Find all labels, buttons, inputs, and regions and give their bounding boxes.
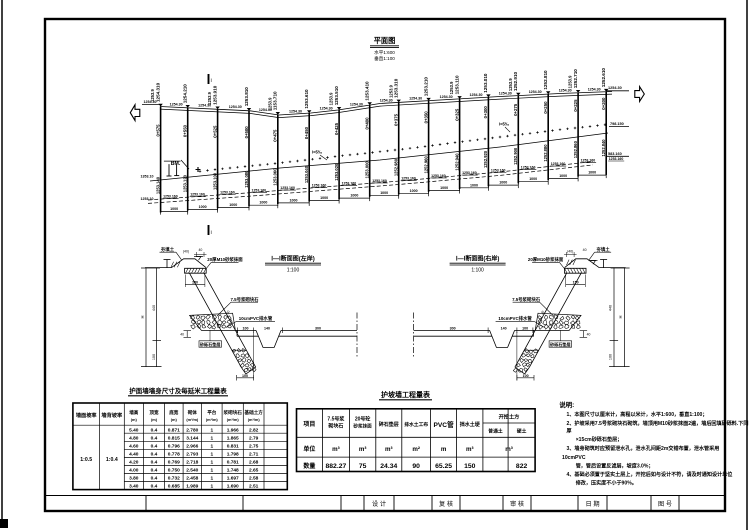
svg-text:浆砌块石: 浆砌块石 (224, 409, 243, 416)
svg-text:1254.30: 1254.30 (529, 90, 542, 94)
svg-text:1253.160: 1253.160 (431, 174, 446, 178)
svg-text:798.150: 798.150 (610, 122, 624, 126)
svg-text:1253.140: 1253.140 (155, 176, 160, 194)
svg-text:1:100: 1:100 (287, 268, 300, 274)
svg-text:5.40: 5.40 (129, 427, 139, 433)
svg-text:4.40: 4.40 (129, 451, 139, 457)
svg-text:2.718: 2.718 (186, 460, 198, 466)
svg-text:1000: 1000 (559, 174, 567, 178)
svg-text:2.71: 2.71 (249, 451, 259, 457)
svg-text:150: 150 (464, 463, 476, 470)
svg-text:开挖土方: 开挖土方 (499, 413, 520, 421)
svg-text:砌体: 砌体 (187, 409, 198, 416)
svg-text:1252.840: 1252.840 (601, 139, 606, 157)
svg-text:1254.210: 1254.210 (183, 84, 188, 104)
svg-text:1253.160: 1253.160 (462, 171, 477, 175)
svg-text:0.778: 0.778 (168, 451, 180, 457)
svg-text:0+475: 0+475 (273, 129, 278, 142)
svg-text:m³: m³ (466, 446, 474, 453)
svg-text:1:100: 1:100 (471, 268, 484, 274)
svg-text:40: 40 (180, 332, 184, 336)
svg-text:90: 90 (412, 463, 420, 470)
svg-text:碎石垫层: 碎石垫层 (379, 421, 399, 428)
svg-text:3、墙身砌筑时应预留泄水孔，泄水孔间距2m交错布置，泄水管采: 3、墙身砌筑时应预留泄水孔，泄水孔间距2m交错布置，泄水管采用 (567, 445, 720, 452)
svg-text:150: 150 (573, 280, 579, 284)
svg-text:0.4: 0.4 (151, 468, 158, 474)
svg-text:排水土工布: 排水土工布 (404, 421, 428, 428)
svg-text:1253.160: 1253.160 (551, 162, 566, 166)
svg-text:1253.120: 1253.120 (183, 174, 188, 192)
svg-text:150: 150 (192, 280, 198, 284)
svg-text:0+425: 0+425 (334, 122, 339, 135)
svg-text:砂浆抹面: 砂浆抹面 (352, 423, 372, 430)
svg-text:0.732: 0.732 (168, 476, 180, 482)
svg-text:0+325: 0+325 (454, 108, 459, 121)
svg-text:4、基础必须置于坚实土层上，开挖后如与设计不符，请及时通知设: 4、基础必须置于坚实土层上，开挖后如与设计不符，请及时通知设计单位 (567, 471, 733, 478)
svg-text:1000: 1000 (320, 196, 328, 200)
svg-text:7.5号浆砌块石: 7.5号浆砌块石 (230, 296, 259, 303)
svg-text:2.458: 2.458 (186, 476, 198, 482)
svg-text:1: 1 (210, 451, 213, 457)
svg-text:1253.510: 1253.510 (334, 86, 339, 106)
svg-text:1353.10: 1353.10 (141, 175, 154, 179)
svg-text:100: 100 (243, 326, 249, 330)
svg-text:(m³/m): (m³/m) (186, 417, 199, 422)
svg-text:100: 100 (522, 326, 528, 330)
svg-text:BM.: BM. (171, 161, 181, 167)
svg-text:1253.160: 1253.160 (521, 165, 536, 169)
svg-text:583.160: 583.160 (608, 152, 622, 156)
svg-text:1253.010: 1253.010 (483, 73, 488, 93)
svg-text:2.82: 2.82 (249, 427, 259, 433)
svg-text:1253.160: 1253.160 (581, 159, 596, 163)
svg-text:1252.810: 1252.810 (543, 70, 548, 90)
svg-text:0.781: 0.781 (227, 460, 239, 466)
svg-text:1153.710: 1153.710 (273, 91, 278, 110)
svg-text:0.4: 0.4 (151, 451, 158, 457)
svg-text:1: 1 (210, 484, 213, 490)
svg-text:2.75: 2.75 (249, 443, 259, 449)
svg-text:1253.160: 1253.160 (342, 181, 357, 185)
svg-text:2.65: 2.65 (249, 468, 259, 474)
svg-text:0.4: 0.4 (151, 460, 158, 466)
svg-text:0.685: 0.685 (168, 484, 180, 490)
svg-text:设 计: 设 计 (372, 500, 386, 508)
svg-text:1000: 1000 (410, 189, 418, 193)
svg-text:平台: 平台 (207, 409, 217, 416)
svg-text:1253.210: 1253.210 (423, 77, 428, 97)
svg-text:(m³/m): (m³/m) (227, 417, 240, 422)
svg-text:4.20: 4.20 (129, 460, 139, 466)
svg-text:0+450: 0+450 (304, 126, 309, 139)
svg-text:1254.30: 1254.30 (409, 97, 422, 101)
svg-text:40: 40 (198, 248, 202, 252)
svg-text:1252.710: 1252.710 (573, 69, 578, 89)
svg-text:m³: m³ (385, 446, 393, 453)
svg-text:1253.9: 1253.9 (568, 75, 573, 88)
svg-text:(m): (m) (151, 417, 158, 422)
svg-text:882.27: 882.27 (326, 463, 347, 470)
svg-text:1253.020: 1253.020 (334, 163, 339, 181)
svg-text:2.68: 2.68 (249, 460, 259, 466)
svg-text:1253.310: 1253.310 (394, 78, 399, 98)
svg-text:100: 100 (523, 374, 529, 378)
svg-text:1254.30: 1254.30 (289, 109, 302, 113)
svg-text:1254.30: 1254.30 (588, 88, 601, 92)
svg-text:1:0.5: 1:0.5 (80, 457, 92, 463)
svg-text:1253.810: 1253.810 (244, 87, 249, 107)
svg-text:0.871: 0.871 (168, 427, 180, 433)
svg-text:1253.410: 1253.410 (365, 81, 370, 101)
svg-text:1000: 1000 (170, 207, 178, 211)
svg-text:0+300: 0+300 (483, 106, 488, 119)
svg-text:基础土方: 基础土方 (244, 409, 264, 416)
svg-text:底宽: 底宽 (169, 409, 179, 416)
svg-text:0+225: 0+225 (573, 99, 578, 112)
svg-text:7.5号浆: 7.5号浆 (327, 416, 345, 423)
svg-text:H: H (618, 315, 623, 318)
svg-text:1: 1 (210, 476, 213, 482)
svg-text:10cmPVC排水管: 10cmPVC排水管 (239, 315, 273, 322)
svg-text:PVC管: PVC管 (434, 420, 455, 429)
svg-text:4.00: 4.00 (129, 468, 139, 474)
svg-text:1.748: 1.748 (227, 468, 239, 474)
svg-text:1254.30: 1254.30 (440, 95, 453, 99)
svg-text:0.4: 0.4 (151, 427, 158, 433)
svg-text:822: 822 (516, 463, 528, 470)
svg-text:单位: 单位 (303, 445, 315, 453)
svg-text:0+500: 0+500 (244, 126, 249, 139)
svg-text:i=5‰: i=5‰ (499, 122, 510, 127)
svg-text:0.4: 0.4 (151, 484, 158, 490)
svg-text:1253.160: 1253.160 (220, 191, 235, 195)
svg-text:1253.910: 1253.910 (212, 85, 217, 105)
svg-text:140: 140 (501, 326, 507, 330)
svg-text:40: 40 (583, 248, 587, 252)
svg-text:顶宽: 顶宽 (149, 409, 159, 416)
svg-text:1253.160: 1253.160 (491, 169, 506, 173)
svg-text:7.5号浆砌块石: 7.5号浆砌块石 (512, 296, 541, 303)
svg-text:平面图: 平面图 (374, 36, 396, 45)
svg-text:1253.160: 1253.160 (252, 188, 267, 192)
svg-text:1254.30: 1254.30 (170, 102, 183, 106)
svg-text:1253.9: 1253.9 (508, 78, 513, 91)
svg-text:24.34: 24.34 (380, 463, 397, 470)
svg-text:1253.160: 1253.160 (312, 184, 327, 188)
svg-text:1253.080: 1253.080 (244, 170, 249, 188)
svg-text:1000: 1000 (380, 191, 388, 195)
svg-text:0.4: 0.4 (151, 443, 158, 449)
svg-text:(m): (m) (171, 417, 178, 422)
svg-text:0+250: 0+250 (543, 101, 548, 114)
svg-text:1254.30: 1254.30 (320, 107, 333, 111)
svg-text:1.865: 1.865 (227, 435, 239, 441)
svg-text:墙高: 墙高 (129, 409, 139, 416)
svg-text:管，管后设置反滤层，坡度3.0%；: 管，管后设置反滤层，坡度3.0%； (576, 463, 654, 470)
svg-text:3.40: 3.40 (129, 484, 139, 490)
svg-text:1000: 1000 (588, 171, 596, 175)
svg-text:1、本图尺寸以厘米计，高程以米计，水平1:600，垂直1:1: 1、本图尺寸以厘米计，高程以米计，水平1:600，垂直1:100； (567, 411, 708, 418)
svg-text:0.4: 0.4 (151, 476, 158, 482)
svg-text:65.25: 65.25 (435, 463, 452, 470)
svg-text:0.831: 0.831 (227, 443, 239, 449)
svg-text:审 核: 审 核 (510, 500, 524, 508)
svg-text:夯填土: 夯填土 (160, 246, 175, 253)
svg-text:1000: 1000 (229, 203, 237, 207)
svg-text:1253.060: 1253.060 (273, 168, 278, 186)
svg-text:2.780: 2.780 (186, 427, 198, 433)
svg-text:1252.900: 1252.900 (513, 147, 518, 165)
svg-text:1:0.4: 1:0.4 (106, 457, 118, 463)
svg-text:30: 30 (540, 310, 545, 315)
svg-text:0+375: 0+375 (394, 113, 399, 126)
svg-text:4.80: 4.80 (129, 435, 139, 441)
svg-text:1254.30: 1254.30 (198, 104, 211, 108)
svg-text:300: 300 (315, 326, 321, 330)
svg-text:m: m (441, 446, 447, 453)
svg-text:水平1:600: 水平1:600 (374, 49, 395, 56)
svg-text:300: 300 (450, 326, 456, 330)
svg-text:Ⅰ—Ⅰ断面图(右岸): Ⅰ—Ⅰ断面图(右岸) (456, 255, 500, 263)
svg-text:砂砾石垫层: 砂砾石垫层 (549, 341, 570, 347)
svg-text:1252.920: 1252.920 (483, 150, 488, 168)
svg-text:墙背坡率: 墙背坡率 (101, 411, 123, 419)
svg-text:Ⅰ: Ⅰ (211, 230, 212, 235)
svg-text:复 核: 复 核 (439, 500, 453, 508)
svg-text:4.60: 4.60 (129, 443, 139, 449)
svg-text:0.750: 0.750 (168, 468, 180, 474)
svg-text:0+575: 0+575 (155, 124, 160, 137)
svg-text:1252.960: 1252.960 (423, 156, 428, 174)
svg-text:数量: 数量 (303, 462, 315, 470)
svg-text:1: 1 (210, 427, 213, 433)
svg-text:1253.160: 1253.160 (190, 193, 205, 197)
svg-text:1000: 1000 (499, 181, 507, 185)
svg-text:3.144: 3.144 (186, 435, 198, 441)
svg-text:10cmPVC排水管: 10cmPVC排水管 (498, 315, 532, 322)
svg-text:1254.30: 1254.30 (144, 100, 157, 104)
svg-text:30: 30 (225, 310, 230, 315)
svg-text:1253.160: 1253.160 (163, 195, 178, 199)
svg-text:0+525: 0+525 (212, 125, 217, 138)
svg-text:0+350: 0+350 (423, 111, 428, 124)
svg-text:1252.940: 1252.940 (454, 153, 459, 171)
svg-text:夯填土: 夯填土 (596, 246, 611, 253)
svg-text:75: 75 (359, 463, 367, 470)
svg-text:H: H (140, 315, 145, 318)
svg-text:1: 1 (210, 468, 213, 474)
svg-text:1253.100: 1253.100 (212, 172, 217, 190)
svg-text:修改，压实度不小于90%。: 修改，压实度不小于90%。 (575, 480, 637, 487)
svg-text:10cmPVC: 10cmPVC (562, 455, 586, 461)
svg-text:挡水土埂: 挡水土埂 (459, 421, 481, 428)
svg-text:说明:: 说明: (559, 400, 574, 409)
svg-text:项目: 项目 (303, 420, 315, 428)
svg-text:440: 440 (609, 305, 613, 311)
svg-text:2.51: 2.51 (249, 484, 259, 490)
svg-text:m²: m² (412, 446, 420, 453)
svg-text:2.58: 2.58 (249, 476, 259, 482)
svg-text:100: 100 (609, 354, 613, 360)
svg-text:砌块石: 砌块石 (327, 423, 343, 430)
svg-text:日 期: 日 期 (585, 500, 599, 508)
svg-text:1252.610: 1252.610 (601, 68, 606, 88)
svg-text:普通土: 普通土 (488, 428, 503, 435)
svg-text:(m³/m): (m³/m) (206, 417, 219, 422)
svg-text:(40): (40) (183, 250, 189, 254)
svg-text:2.793: 2.793 (186, 451, 198, 457)
svg-text:1000: 1000 (259, 201, 267, 205)
svg-text:1253.610: 1253.610 (304, 89, 309, 109)
svg-text:护坡墙工程量表: 护坡墙工程量表 (381, 390, 431, 399)
svg-text:墙面坡率: 墙面坡率 (76, 411, 98, 419)
svg-text:1000: 1000 (440, 186, 448, 190)
svg-text:1253.9: 1253.9 (388, 84, 393, 97)
svg-text:1254.30: 1254.30 (608, 86, 622, 90)
svg-text:1: 1 (210, 460, 213, 466)
svg-text:1253.160: 1253.160 (401, 177, 416, 181)
svg-text:1252.860: 1252.860 (573, 140, 578, 158)
svg-text:0.4: 0.4 (151, 435, 158, 441)
svg-text:1253.9: 1253.9 (449, 81, 454, 94)
svg-text:40: 40 (587, 332, 591, 336)
svg-text:硬土: 硬土 (517, 428, 527, 435)
svg-text:0.815: 0.815 (168, 435, 180, 441)
svg-text:(m³/m): (m³/m) (248, 417, 261, 422)
svg-text:20号砼: 20号砼 (355, 416, 372, 423)
svg-text:3.80: 3.80 (129, 476, 139, 482)
svg-text:厚: 厚 (567, 428, 572, 435)
svg-text:1253.160: 1253.160 (609, 157, 624, 161)
svg-text:1252.880: 1252.880 (543, 144, 548, 162)
svg-text:1252.910: 1252.910 (513, 71, 518, 91)
svg-text:1253.160: 1253.160 (280, 186, 295, 190)
svg-text:0+200: 0+200 (601, 97, 606, 110)
svg-text:图 号: 图 号 (658, 501, 672, 508)
svg-text:1254.30: 1254.30 (499, 92, 512, 96)
svg-text:1253.9: 1253.9 (329, 92, 334, 105)
svg-text:100: 100 (152, 354, 156, 360)
svg-text:1254.30: 1254.30 (380, 99, 393, 103)
svg-text:Ⅰ—Ⅰ断面图(左岸): Ⅰ—Ⅰ断面图(左岸) (271, 255, 315, 263)
svg-text:20厚M10砂浆抹面: 20厚M10砂浆抹面 (207, 256, 243, 263)
svg-text:2.540: 2.540 (186, 468, 198, 474)
svg-text:1252.980: 1252.980 (394, 158, 399, 176)
svg-text:1254.30: 1254.30 (559, 89, 572, 93)
svg-text:1000: 1000 (350, 194, 358, 198)
svg-text:1000: 1000 (199, 205, 207, 209)
svg-text:1.697: 1.697 (227, 476, 239, 482)
svg-text:1000: 1000 (529, 177, 537, 181)
svg-text:140: 140 (264, 326, 270, 330)
svg-text:m³: m³ (505, 446, 513, 453)
svg-text:0+400: 0+400 (365, 117, 370, 130)
svg-text:1254.30: 1254.30 (259, 108, 272, 112)
svg-text:20厚M10砂浆抹面: 20厚M10砂浆抹面 (528, 256, 564, 263)
svg-text:2、护坡采用7.5号浆砌块石砌筑，墙顶用M10砂浆抹面2遍，: 2、护坡采用7.5号浆砌块石砌筑，墙顶用M10砂浆抹面2遍，墙后回填砂砾料.下同 (567, 420, 749, 427)
svg-text:1.966: 1.966 (227, 427, 239, 433)
svg-text:i=5‰: i=5‰ (312, 150, 323, 155)
svg-text:1.989: 1.989 (186, 484, 198, 490)
svg-text:2.966: 2.966 (186, 443, 198, 449)
svg-text:1254.30: 1254.30 (229, 105, 242, 109)
svg-text:0.769: 0.769 (168, 460, 180, 466)
svg-text:砂砾石垫层: 砂砾石垫层 (199, 341, 220, 347)
svg-text:440: 440 (152, 305, 156, 311)
svg-text:m³: m³ (359, 446, 367, 453)
svg-text:1.690: 1.690 (227, 484, 239, 490)
svg-text:1253.040: 1253.040 (304, 165, 309, 183)
svg-text:1: 1 (210, 435, 213, 441)
svg-text:2.79: 2.79 (249, 435, 259, 441)
svg-text:1000: 1000 (290, 198, 298, 202)
svg-text:1: 1 (210, 443, 213, 449)
svg-text:1000: 1000 (470, 183, 478, 187)
svg-text:(m): (m) (131, 417, 138, 422)
svg-text:1253.160: 1253.160 (372, 179, 387, 183)
svg-text:1254.30: 1254.30 (350, 103, 363, 107)
svg-text:m³: m³ (332, 446, 340, 453)
svg-text:Ⅰ: Ⅰ (211, 78, 212, 83)
svg-text:1253.10: 1253.10 (141, 197, 154, 201)
svg-text:0+550: 0+550 (183, 124, 188, 137)
svg-text:100: 100 (242, 374, 248, 378)
svg-text:0.796: 0.796 (168, 443, 180, 449)
svg-text:0+275: 0+275 (513, 103, 518, 116)
svg-text:1253.000: 1253.000 (365, 161, 370, 179)
svg-text:(40): (40) (567, 250, 573, 254)
svg-text:护面墙墙身尺寸及每延米工程量表: 护面墙墙身尺寸及每延米工程量表 (129, 386, 227, 395)
svg-text:1.798: 1.798 (227, 451, 239, 457)
svg-text:×15cm砂砾石垫层；: ×15cm砂砾石垫层； (576, 436, 623, 443)
svg-text:1253.110: 1253.110 (454, 75, 459, 94)
svg-text:垂直1:100: 垂直1:100 (374, 55, 395, 61)
svg-text:1254.30: 1254.30 (470, 93, 483, 97)
